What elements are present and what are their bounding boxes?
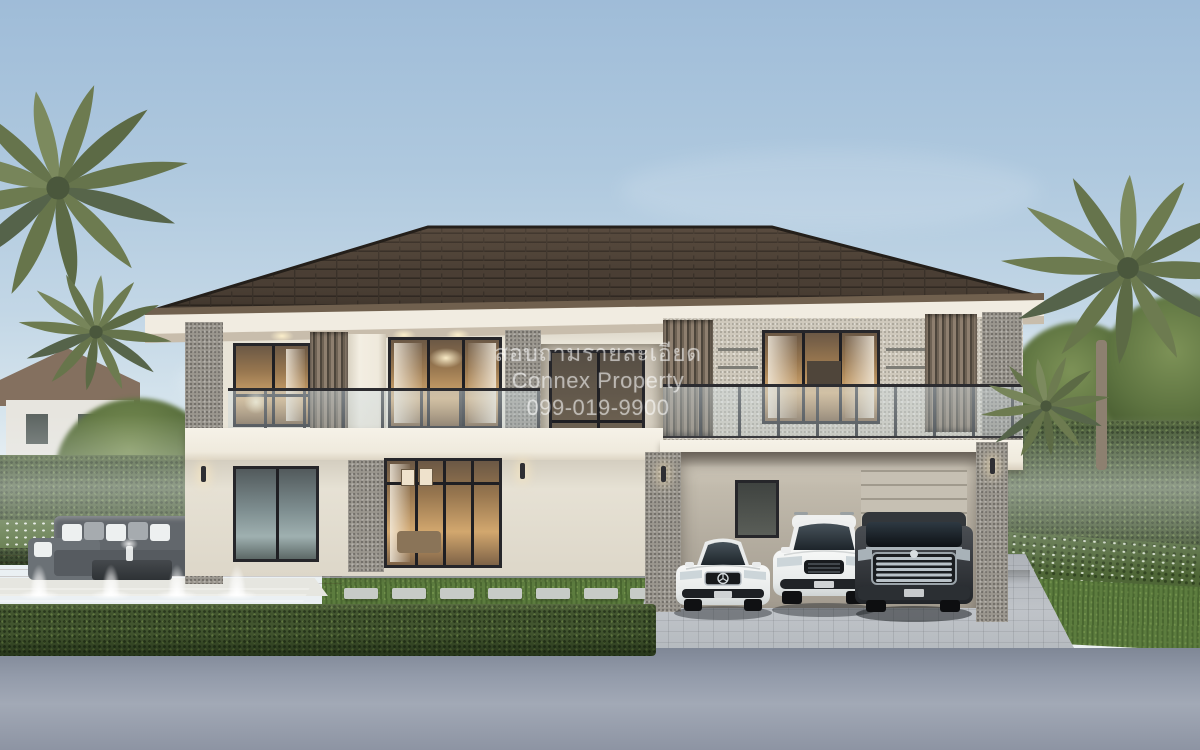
watermark-line-1: สอบถามรายละเอียด <box>448 340 748 367</box>
watermark: สอบถามรายละเอียด Connex Property 099-019… <box>448 340 748 421</box>
watermark-line-2: Connex Property <box>448 367 748 394</box>
architectural-rendering: สอบถามรายละเอียด Connex Property 099-019… <box>0 0 1200 750</box>
watermark-line-3: 099-019-9900 <box>448 394 748 421</box>
